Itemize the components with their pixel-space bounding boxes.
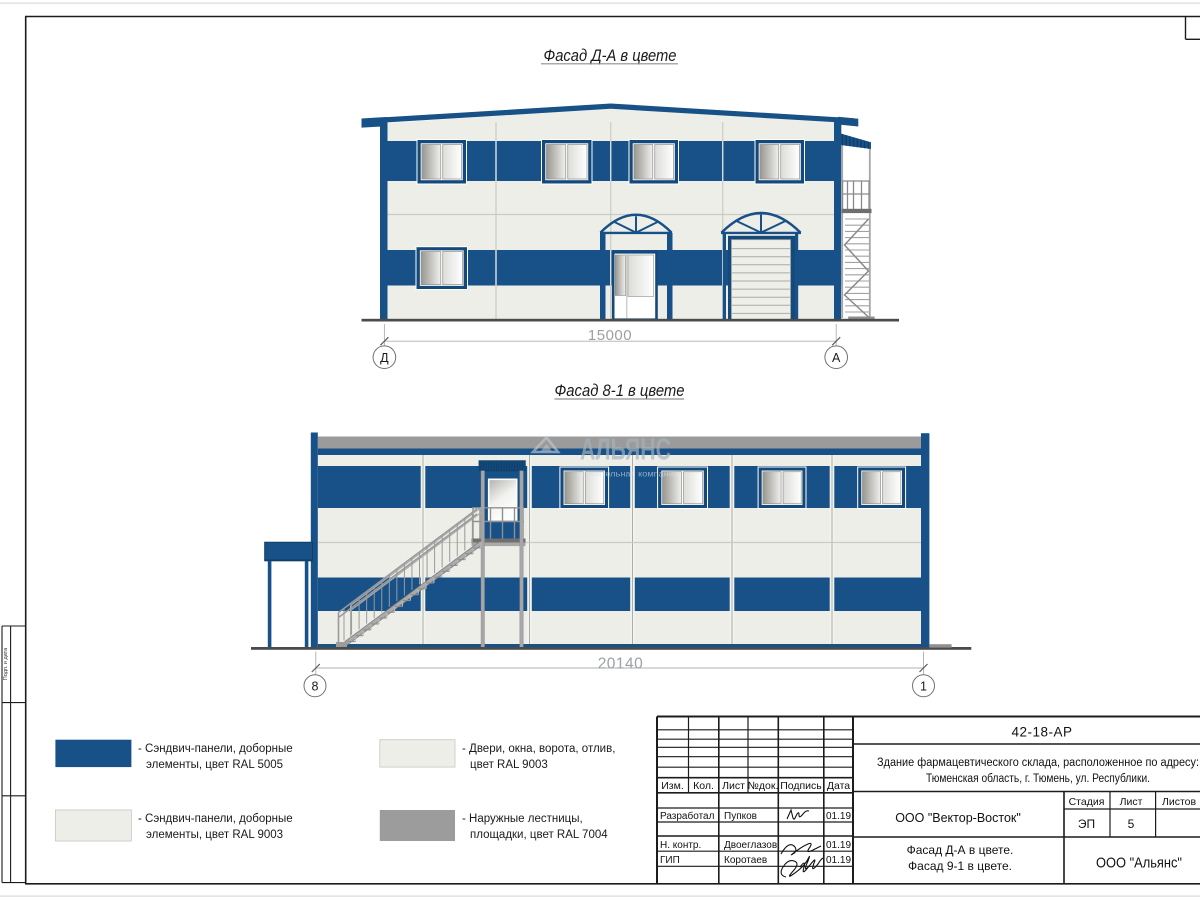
svg-text:Н. контр.: Н. контр. (660, 840, 701, 851)
svg-text:- Сэндвич-панели, доборные: - Сэндвич-панели, доборные (138, 813, 293, 825)
svg-text:ООО "Альянс": ООО "Альянс" (1096, 855, 1182, 872)
svg-text:Коротаев: Коротаев (724, 855, 767, 866)
svg-text:Здание фармацевтического склад: Здание фармацевтического склада, располо… (877, 757, 1199, 769)
svg-text:42-18-АР: 42-18-АР (1011, 725, 1072, 740)
svg-text:Стадия: Стадия (1069, 796, 1105, 808)
svg-text:Изм.: Изм. (661, 780, 684, 792)
svg-text:01.19: 01.19 (826, 811, 851, 822)
svg-text:Листов: Листов (1162, 796, 1197, 808)
svg-text:ООО "Вектор-Восток": ООО "Вектор-Восток" (895, 811, 1021, 825)
svg-text:Фасад Д-А в цвете: Фасад Д-А в цвете (544, 47, 677, 65)
svg-text:Д: Д (380, 351, 389, 365)
svg-text:Фасад 9-1 в цвете.: Фасад 9-1 в цвете. (908, 859, 1012, 873)
svg-text:ЭП: ЭП (1078, 817, 1095, 831)
svg-text:8: 8 (312, 679, 319, 693)
svg-text:Кол.: Кол. (693, 780, 714, 792)
svg-text:5: 5 (1128, 817, 1135, 831)
svg-text:Фасад Д-А в цвете.: Фасад Д-А в цвете. (907, 843, 1014, 857)
svg-text:Подпись: Подпись (780, 780, 822, 792)
svg-text:строительная компания: строительная компания (577, 469, 679, 479)
svg-text:элементы, цвет RAL 9003: элементы, цвет RAL 9003 (146, 829, 283, 841)
svg-text:- Наружные лестницы,: - Наружные лестницы, (462, 813, 583, 825)
svg-text:- Двери, окна, ворота, отлив,: - Двери, окна, ворота, отлив, (462, 743, 615, 755)
svg-text:цвет RAL 9003: цвет RAL 9003 (470, 759, 548, 771)
svg-text:элементы, цвет RAL 5005: элементы, цвет RAL 5005 (146, 759, 283, 771)
svg-text:площадки, цвет RAL 7004: площадки, цвет RAL 7004 (470, 829, 608, 841)
svg-text:1: 1 (920, 679, 927, 693)
svg-text:01.19: 01.19 (826, 840, 851, 851)
svg-text:А: А (832, 351, 841, 365)
svg-text:Пупков: Пупков (724, 811, 757, 822)
svg-text:Лист: Лист (1120, 796, 1143, 808)
svg-text:№док.: №док. (748, 780, 779, 792)
svg-text:- Сэндвич-панели, доборные: - Сэндвич-панели, доборные (138, 743, 293, 755)
svg-text:Тюменская область, г. Тюмень,: Тюменская область, г. Тюмень, ул. Респуб… (926, 773, 1150, 785)
svg-text:Лист: Лист (722, 780, 745, 792)
svg-text:АЛЬЯНС: АЛЬЯНС (580, 432, 671, 467)
svg-text:Фасад 8-1 в цвете: Фасад 8-1 в цвете (555, 382, 685, 400)
svg-text:Двоеглазов: Двоеглазов (724, 840, 777, 851)
svg-text:Разработал: Разработал (660, 810, 715, 822)
svg-text:15000: 15000 (588, 327, 632, 344)
svg-text:01.19: 01.19 (826, 855, 851, 866)
svg-text:ГИП: ГИП (660, 855, 680, 866)
svg-text:Дата: Дата (827, 780, 850, 792)
svg-text:Подп. и дата: Подп. и дата (3, 647, 9, 680)
svg-text:20140: 20140 (598, 656, 644, 673)
